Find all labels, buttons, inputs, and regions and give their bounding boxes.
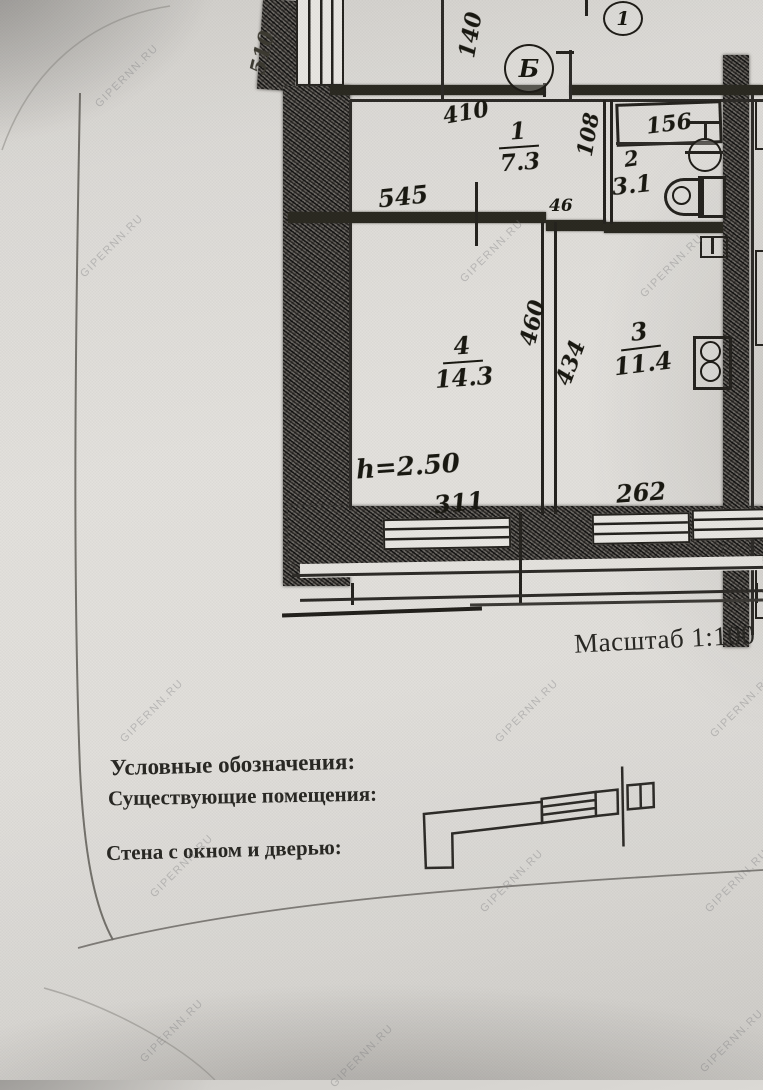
door-tick-room1 xyxy=(475,182,478,246)
dim-top: 140 xyxy=(454,10,488,60)
legend-wall-short xyxy=(596,790,618,816)
dim-height-note: h=2.50 xyxy=(355,448,461,485)
room1-area: 7.3 xyxy=(486,146,554,177)
axis-tick-1 xyxy=(585,0,588,16)
room3-label: 3 11.4 xyxy=(605,316,677,380)
window-bottom-1 xyxy=(383,517,512,550)
sink-cross-line xyxy=(685,151,723,154)
room3-area: 11.4 xyxy=(608,345,677,380)
sink-icon xyxy=(688,138,722,172)
legend-subtitle: Существующие помещения: xyxy=(108,782,377,812)
dim-ext-line-mid xyxy=(519,512,522,604)
wall-left-inner-face xyxy=(349,100,352,510)
axis-marker-b: Б xyxy=(504,44,554,93)
room2-number: 2 xyxy=(622,145,640,172)
page-bottom-curl xyxy=(78,870,763,948)
dim-room1-bottom: 545 xyxy=(377,179,430,213)
sink-bar xyxy=(690,121,720,124)
room4-area: 14.3 xyxy=(428,361,500,393)
axis-marker-b-label: Б xyxy=(519,54,540,83)
page-bottomleft-curl xyxy=(44,988,215,1080)
toilet-icon-tank xyxy=(698,176,726,218)
frame-line-left xyxy=(282,607,482,618)
dim-hall-width: 108 xyxy=(572,111,604,159)
room4-label: 4 14.3 xyxy=(426,332,500,393)
wall-bathroom-left xyxy=(603,100,613,224)
dim-ext-line-left xyxy=(351,583,354,605)
wall-room3-top xyxy=(604,222,723,233)
window-left-wall xyxy=(296,0,344,86)
dim-room3-bottom: 262 xyxy=(615,476,667,508)
axis-marker-1-label: 1 xyxy=(616,8,629,30)
wall-neighbour-line xyxy=(751,90,754,635)
wall-neighbour-frag-2 xyxy=(755,250,763,346)
room1-number: 1 xyxy=(497,119,539,150)
wall-room1-bottom xyxy=(288,212,546,223)
toilet-icon-inner xyxy=(672,186,691,205)
axis-tick-b xyxy=(556,51,574,54)
radiator-icon-top-circle xyxy=(700,341,721,362)
scanned-floor-plan-page: { "watermark": { "text": "GIPERNN.RU" },… xyxy=(0,0,763,1080)
legend-end-block xyxy=(627,783,653,809)
dim-room4-bottom: 311 xyxy=(433,485,486,519)
axis-line-a xyxy=(441,0,444,102)
window-bottom-2 xyxy=(592,512,691,545)
frame-line-right xyxy=(470,598,763,606)
axis-line-b xyxy=(569,50,572,102)
dim-bath-fixture: 156 xyxy=(645,108,694,139)
vent-icon-divider xyxy=(711,236,714,254)
legend-window-glyph xyxy=(542,792,597,823)
dim-jog: 46 xyxy=(549,196,573,216)
window-bottom-3 xyxy=(692,508,763,540)
axis-marker-1: 1 xyxy=(603,1,643,36)
wall-neighbour-frag-1 xyxy=(755,100,763,150)
room1-label: 1 7.3 xyxy=(484,118,554,176)
room2-area: 3.1 xyxy=(611,170,654,201)
wall-top-right-band xyxy=(570,85,763,95)
radiator-icon-bottom-circle xyxy=(700,361,721,382)
floor-plan: 1 Б 156 1 7.3 2 3.1 3 11.4 4 14.3 510 14… xyxy=(0,0,763,660)
legend-door-axis xyxy=(622,767,623,847)
room4-number: 4 xyxy=(441,333,484,365)
